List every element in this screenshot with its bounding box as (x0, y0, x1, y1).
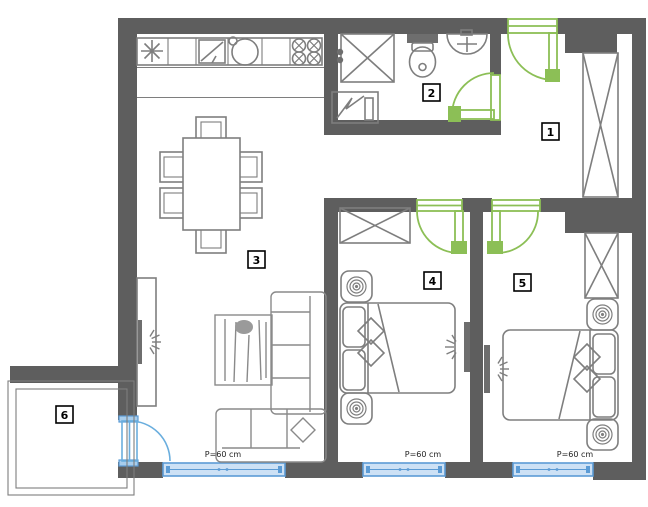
wall-bottom-3 (445, 462, 513, 478)
parapet-label-bedroom1: P=60 cm (405, 450, 442, 459)
refrigerator-icon (199, 40, 225, 63)
doors (417, 19, 560, 254)
bathroom-door (448, 73, 500, 122)
bedroom1-wardrobe-icon (340, 208, 410, 243)
wall-right (632, 18, 646, 480)
bedroom2-nightstand-bottom (587, 419, 618, 450)
bedroom1-door (417, 200, 467, 254)
shower-icon (337, 34, 394, 82)
toilet-icon (407, 34, 438, 77)
wall-bedroom2-top (540, 198, 632, 212)
bedroom2-tv-icon (484, 345, 509, 393)
wall-bottom-right-corner (593, 462, 646, 480)
entry-door (508, 19, 560, 82)
bathroom (332, 30, 487, 123)
bedroom2-bed-icon (503, 330, 618, 420)
round-sink-icon (229, 37, 258, 65)
living-room-window (163, 463, 285, 476)
windows: P=60 cm P=60 cm P=60 cm (163, 450, 593, 476)
corner-sofa-icon (216, 292, 326, 462)
wall-left (118, 18, 137, 420)
room1-label: 1 (547, 126, 555, 139)
wall-bottom-2 (285, 462, 363, 478)
balcony-outer-outline (8, 381, 134, 495)
balcony (8, 381, 134, 495)
parapet-label-bedroom2: P=60 cm (557, 450, 594, 459)
hallway (583, 53, 618, 197)
washbasin-icon (447, 30, 487, 54)
bedroom2-nightstand-top (587, 299, 618, 330)
bedroom1-tv-icon (445, 322, 470, 372)
wall-top-left (118, 18, 508, 34)
wall-bathroom-right (490, 34, 501, 75)
wall-pier-between-doors (462, 198, 492, 212)
star-symbol-icon (141, 40, 163, 62)
room5-label: 5 (519, 277, 527, 290)
wall-bedroom1-bedroom2 (470, 212, 483, 462)
floor-plan-svg: P=60 cm P=60 cm P=60 cm (0, 0, 648, 507)
cooktop-icon (293, 39, 321, 65)
walls (10, 18, 646, 480)
bedroom1-nightstand-top (341, 271, 372, 302)
bedroom1-bed-icon (340, 303, 455, 393)
room3-label: 3 (253, 254, 261, 267)
bedroom2-wardrobe-icon (585, 233, 618, 298)
wall-hall-pier (565, 34, 617, 53)
tv-unit-icon (137, 278, 161, 406)
room2-label: 2 (428, 87, 436, 100)
room6-label: 6 (61, 409, 69, 422)
bedroom1-window (363, 463, 445, 476)
wall-bedroom2-pier (565, 212, 632, 233)
living-room (137, 117, 326, 462)
bedroom1-nightstand-bottom (341, 393, 372, 424)
parapet-label-living: P=60 cm (205, 450, 242, 459)
wall-bathroom-left (324, 34, 338, 135)
bedroom-2 (484, 233, 618, 450)
hallway-wardrobe-icon (583, 53, 618, 197)
balcony-inner-outline (16, 389, 127, 488)
dining-table-icon (160, 117, 262, 253)
bedroom2-window (513, 463, 593, 476)
room4-label: 4 (429, 275, 437, 288)
kitchen-counter (137, 37, 324, 98)
floor-plan-canvas: P=60 cm P=60 cm P=60 cm (0, 0, 648, 507)
cabinet-icon (215, 315, 272, 385)
bedroom2-door (487, 200, 540, 254)
washing-machine-icon (332, 92, 378, 123)
bedroom-1 (340, 208, 470, 424)
